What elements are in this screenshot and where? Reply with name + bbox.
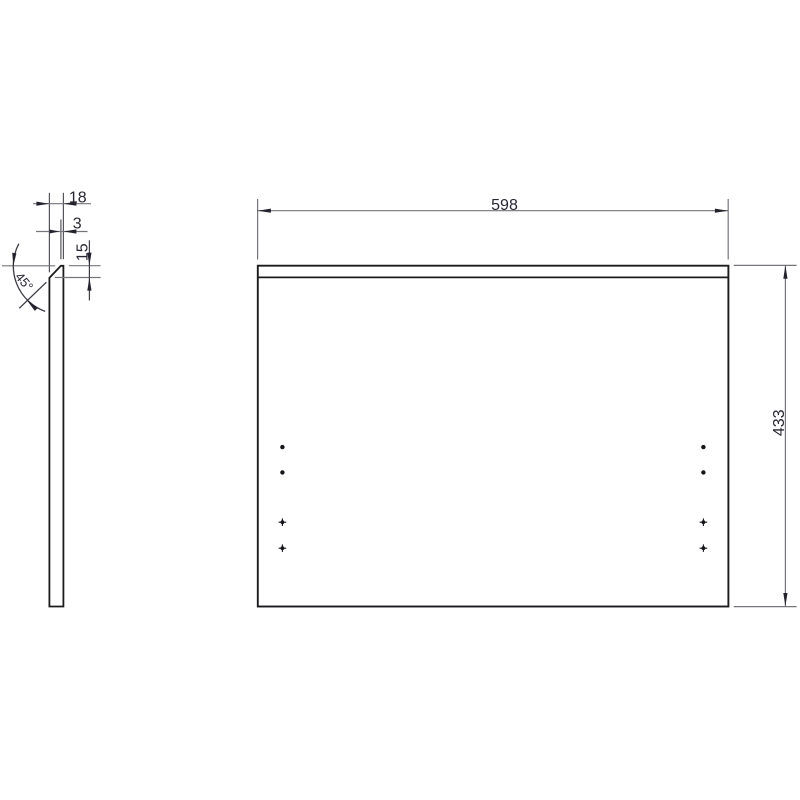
svg-text:15: 15 (75, 243, 92, 261)
svg-text:18: 18 (69, 189, 87, 206)
svg-text:433: 433 (771, 409, 788, 436)
svg-text:3: 3 (73, 215, 82, 232)
svg-text:598: 598 (491, 197, 518, 214)
